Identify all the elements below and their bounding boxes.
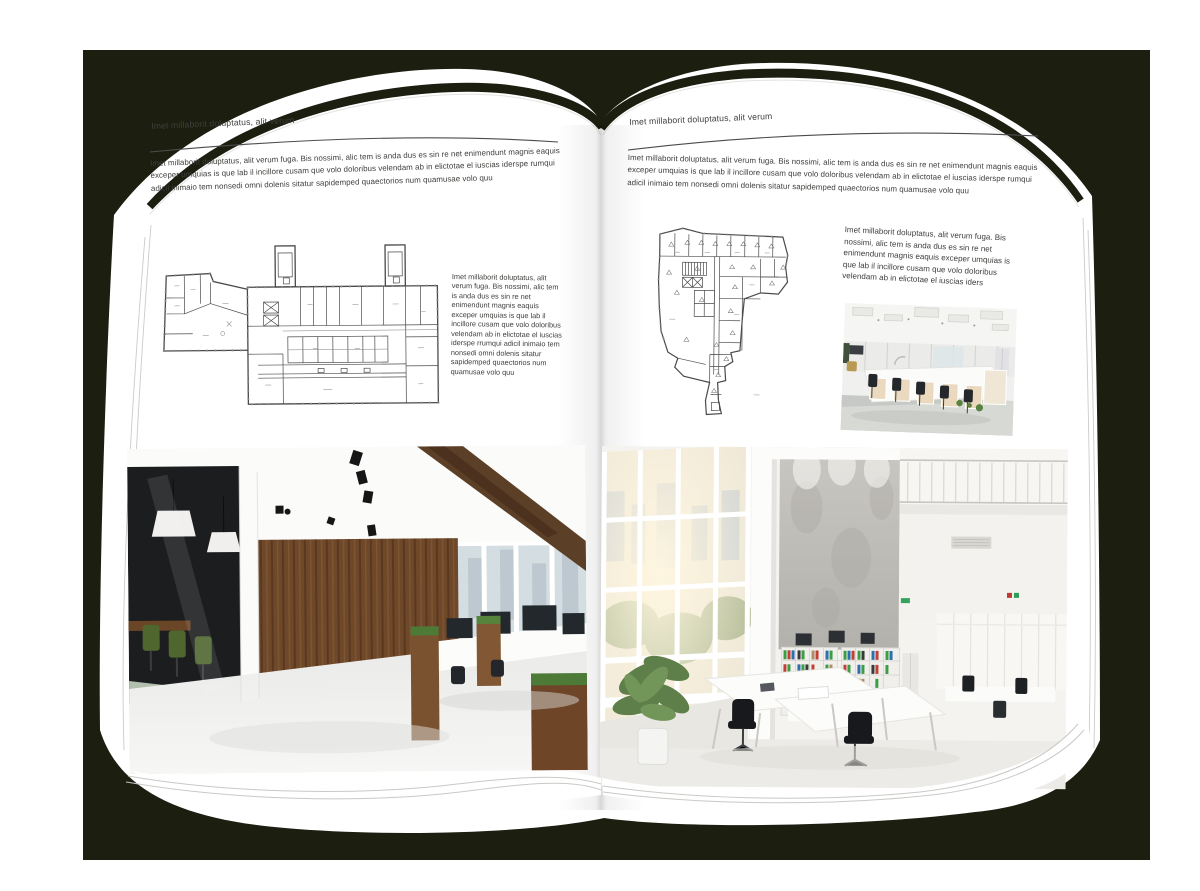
floor-plan-image-left [162,244,441,408]
brochure-mockup: Imet millaborit doluptatus, alit verum I… [0,0,1200,891]
office-photo-large-right [600,446,1068,789]
right-header-rule [626,124,1042,156]
office-photo-large-left [127,445,588,774]
office-photo-small-right [841,303,1017,436]
floor-plan-image-right [653,224,811,421]
left-aside-text: Imet millaborit doluptatus, alit verum f… [451,272,564,378]
right-aside-text: Imet millaborit doluptatus, alit verum f… [842,224,1025,291]
